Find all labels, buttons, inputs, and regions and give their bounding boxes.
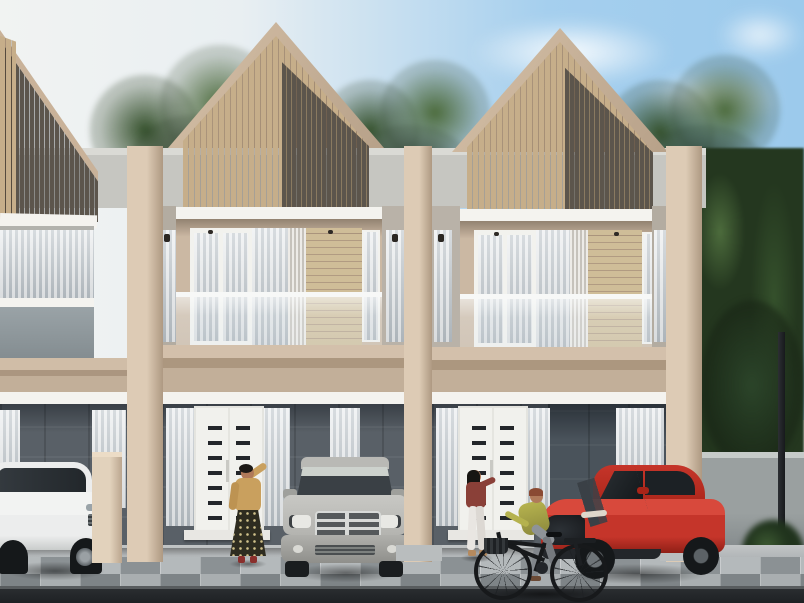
bike-chainring <box>536 562 548 574</box>
car-wheel-rear <box>683 537 719 575</box>
right-canopy <box>430 392 700 404</box>
bumper-intake <box>315 545 375 555</box>
floral-skirt <box>230 510 266 556</box>
suv-wheel <box>285 561 309 577</box>
car-side-window <box>645 471 695 495</box>
divider-pillar-left <box>127 146 163 562</box>
suv-windshield <box>297 467 393 497</box>
suv-windows <box>0 468 86 494</box>
right-ledge <box>430 347 696 392</box>
pillar-base-step <box>396 545 442 561</box>
render-canvas <box>0 0 804 603</box>
suv-bumper <box>281 535 409 563</box>
torso-top <box>235 478 261 512</box>
road <box>0 589 804 603</box>
divider-pillar-center <box>404 146 432 562</box>
shoes <box>238 556 245 563</box>
grille-bar-vertical <box>345 513 349 537</box>
bike-basket <box>484 538 508 554</box>
silver-suv <box>279 457 409 579</box>
rider-hair <box>529 488 543 496</box>
hair-bun <box>239 464 253 473</box>
suv-headlight <box>379 515 401 528</box>
bike-rear-rack <box>564 538 596 543</box>
right-gable-face <box>467 42 653 212</box>
woman-left <box>226 466 270 564</box>
shoes <box>250 556 257 563</box>
car-mirror <box>637 487 649 494</box>
ceiling-downlight <box>614 232 619 236</box>
right-ground-window <box>436 408 458 526</box>
suv-wheel-rear <box>0 540 28 574</box>
fog-light <box>293 545 303 553</box>
suv-wheel <box>379 561 403 577</box>
garden-wall <box>92 452 122 563</box>
ceiling-downlight <box>494 232 499 236</box>
right-balcony <box>460 221 666 347</box>
sandal <box>530 576 541 581</box>
cyclist <box>468 490 610 602</box>
wall-sconce <box>438 234 444 242</box>
bike-saddle <box>546 532 562 537</box>
right-side-window <box>434 230 452 342</box>
right-fascia <box>458 209 668 221</box>
suv-headlight <box>289 515 311 528</box>
right-glass-railing <box>460 294 666 352</box>
